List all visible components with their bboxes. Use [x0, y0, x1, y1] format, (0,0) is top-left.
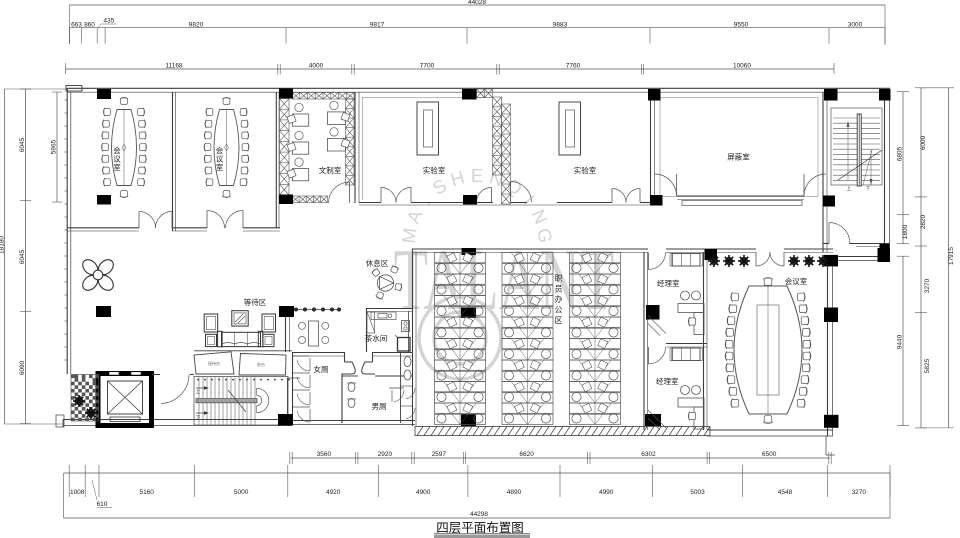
svg-text:6500: 6500	[762, 451, 777, 458]
svg-text:4890: 4890	[507, 489, 522, 496]
svg-text:44298: 44298	[470, 511, 488, 518]
svg-text:2920: 2920	[378, 451, 393, 458]
svg-text:办: 办	[555, 294, 563, 304]
svg-text:2820: 2820	[920, 214, 927, 229]
svg-text:经理室: 经理室	[657, 278, 680, 288]
svg-text:会: 会	[113, 145, 121, 155]
svg-text:6045: 6045	[19, 249, 26, 264]
svg-text:4900: 4900	[416, 489, 431, 496]
svg-text:5825: 5825	[924, 358, 931, 373]
svg-text:4990: 4990	[599, 489, 614, 496]
svg-text:4920: 4920	[326, 489, 341, 496]
svg-text:17915: 17915	[948, 247, 955, 265]
svg-text:室: 室	[216, 162, 224, 172]
svg-text:上: 上	[196, 388, 201, 394]
svg-text:4548: 4548	[778, 489, 793, 496]
svg-text:区: 区	[555, 316, 563, 325]
svg-text:6302: 6302	[641, 451, 656, 458]
svg-text:等待区: 等待区	[244, 297, 267, 307]
svg-text:860: 860	[84, 22, 95, 29]
svg-text:上: 上	[847, 185, 852, 191]
svg-text:7700: 7700	[420, 63, 435, 70]
svg-text:4000: 4000	[309, 63, 324, 70]
svg-text:职: 职	[555, 274, 563, 283]
svg-text:5003: 5003	[690, 489, 705, 496]
svg-text:实验室: 实验室	[423, 165, 446, 175]
svg-text:44028: 44028	[468, 0, 486, 6]
svg-text:茶水间: 茶水间	[365, 333, 388, 343]
svg-text:10060: 10060	[733, 63, 751, 70]
svg-text:18180: 18180	[0, 236, 6, 254]
svg-text:663: 663	[71, 22, 82, 29]
svg-text:会: 会	[216, 145, 224, 155]
svg-text:435: 435	[103, 17, 114, 24]
svg-text:接待台: 接待台	[208, 360, 220, 366]
svg-text:3270: 3270	[924, 278, 931, 293]
svg-text:3560: 3560	[317, 451, 332, 458]
svg-text:休息区: 休息区	[366, 258, 389, 268]
svg-text:公: 公	[555, 306, 563, 315]
svg-text:9440: 9440	[897, 334, 904, 349]
svg-text:3270: 3270	[852, 489, 867, 496]
svg-text:5000: 5000	[234, 489, 249, 496]
svg-text:室: 室	[113, 162, 121, 172]
svg-text:文制室: 文制室	[319, 165, 342, 175]
svg-text:四层平面布置图: 四层平面布置图	[436, 521, 524, 535]
svg-text:6000: 6000	[920, 135, 927, 150]
svg-text:11168: 11168	[165, 63, 182, 70]
svg-text:男厕: 男厕	[372, 402, 387, 411]
svg-text:3000: 3000	[848, 22, 863, 29]
svg-text:5160: 5160	[139, 489, 154, 496]
svg-text:1800: 1800	[902, 224, 909, 239]
svg-text:9820: 9820	[189, 22, 204, 29]
svg-text:1008: 1008	[70, 489, 85, 496]
svg-text:9550: 9550	[734, 22, 749, 29]
svg-text:5965: 5965	[51, 139, 58, 154]
svg-text:女厕: 女厕	[314, 364, 329, 374]
svg-text:9817: 9817	[370, 22, 385, 29]
svg-text:经理室: 经理室	[656, 376, 679, 386]
svg-text:2597: 2597	[432, 451, 447, 458]
svg-text:610: 610	[97, 501, 108, 508]
svg-text:员: 员	[555, 285, 563, 294]
svg-text:会议室: 会议室	[785, 276, 808, 286]
svg-text:6090: 6090	[19, 360, 26, 375]
svg-text:9883: 9883	[553, 22, 568, 29]
svg-text:实验室: 实验室	[574, 165, 597, 175]
svg-text:前台: 前台	[257, 361, 265, 367]
svg-text:6045: 6045	[19, 137, 26, 152]
svg-text:7760: 7760	[566, 63, 581, 70]
svg-text:6620: 6620	[519, 451, 534, 458]
svg-text:屏蔽室: 屏蔽室	[727, 152, 750, 162]
svg-text:E: E	[471, 165, 483, 186]
svg-text:6805: 6805	[897, 146, 904, 161]
